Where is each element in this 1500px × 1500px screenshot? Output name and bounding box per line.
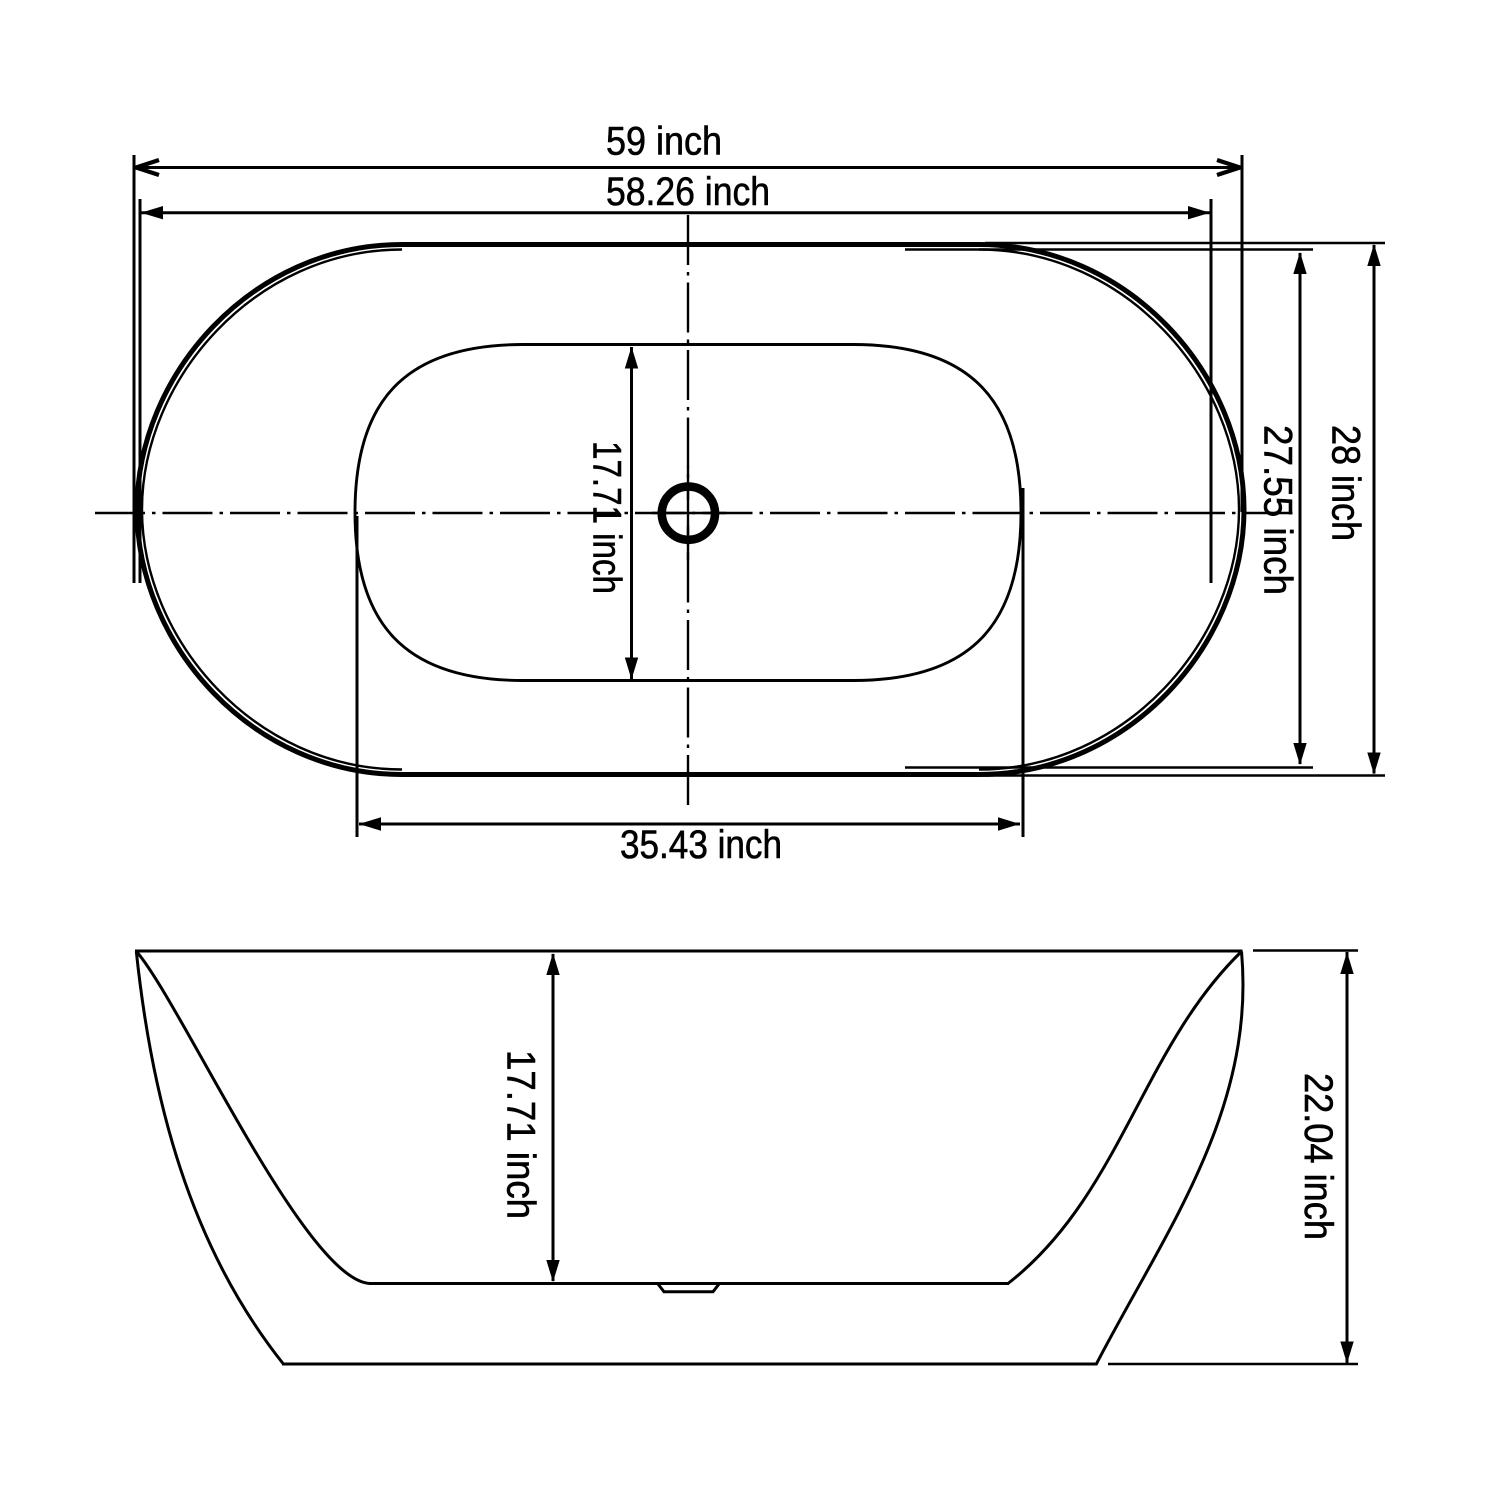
svg-text:17.71 inch: 17.71 inch xyxy=(499,1050,543,1219)
svg-text:58.26 inch: 58.26 inch xyxy=(606,170,770,214)
svg-text:27.55 inch: 27.55 inch xyxy=(1256,425,1300,595)
svg-text:28 inch: 28 inch xyxy=(1324,425,1368,541)
svg-text:17.71 inch: 17.71 inch xyxy=(585,441,629,594)
svg-text:35.43 inch: 35.43 inch xyxy=(620,823,782,867)
svg-text:22.04 inch: 22.04 inch xyxy=(1296,1073,1340,1240)
svg-text:59 inch: 59 inch xyxy=(606,120,722,164)
